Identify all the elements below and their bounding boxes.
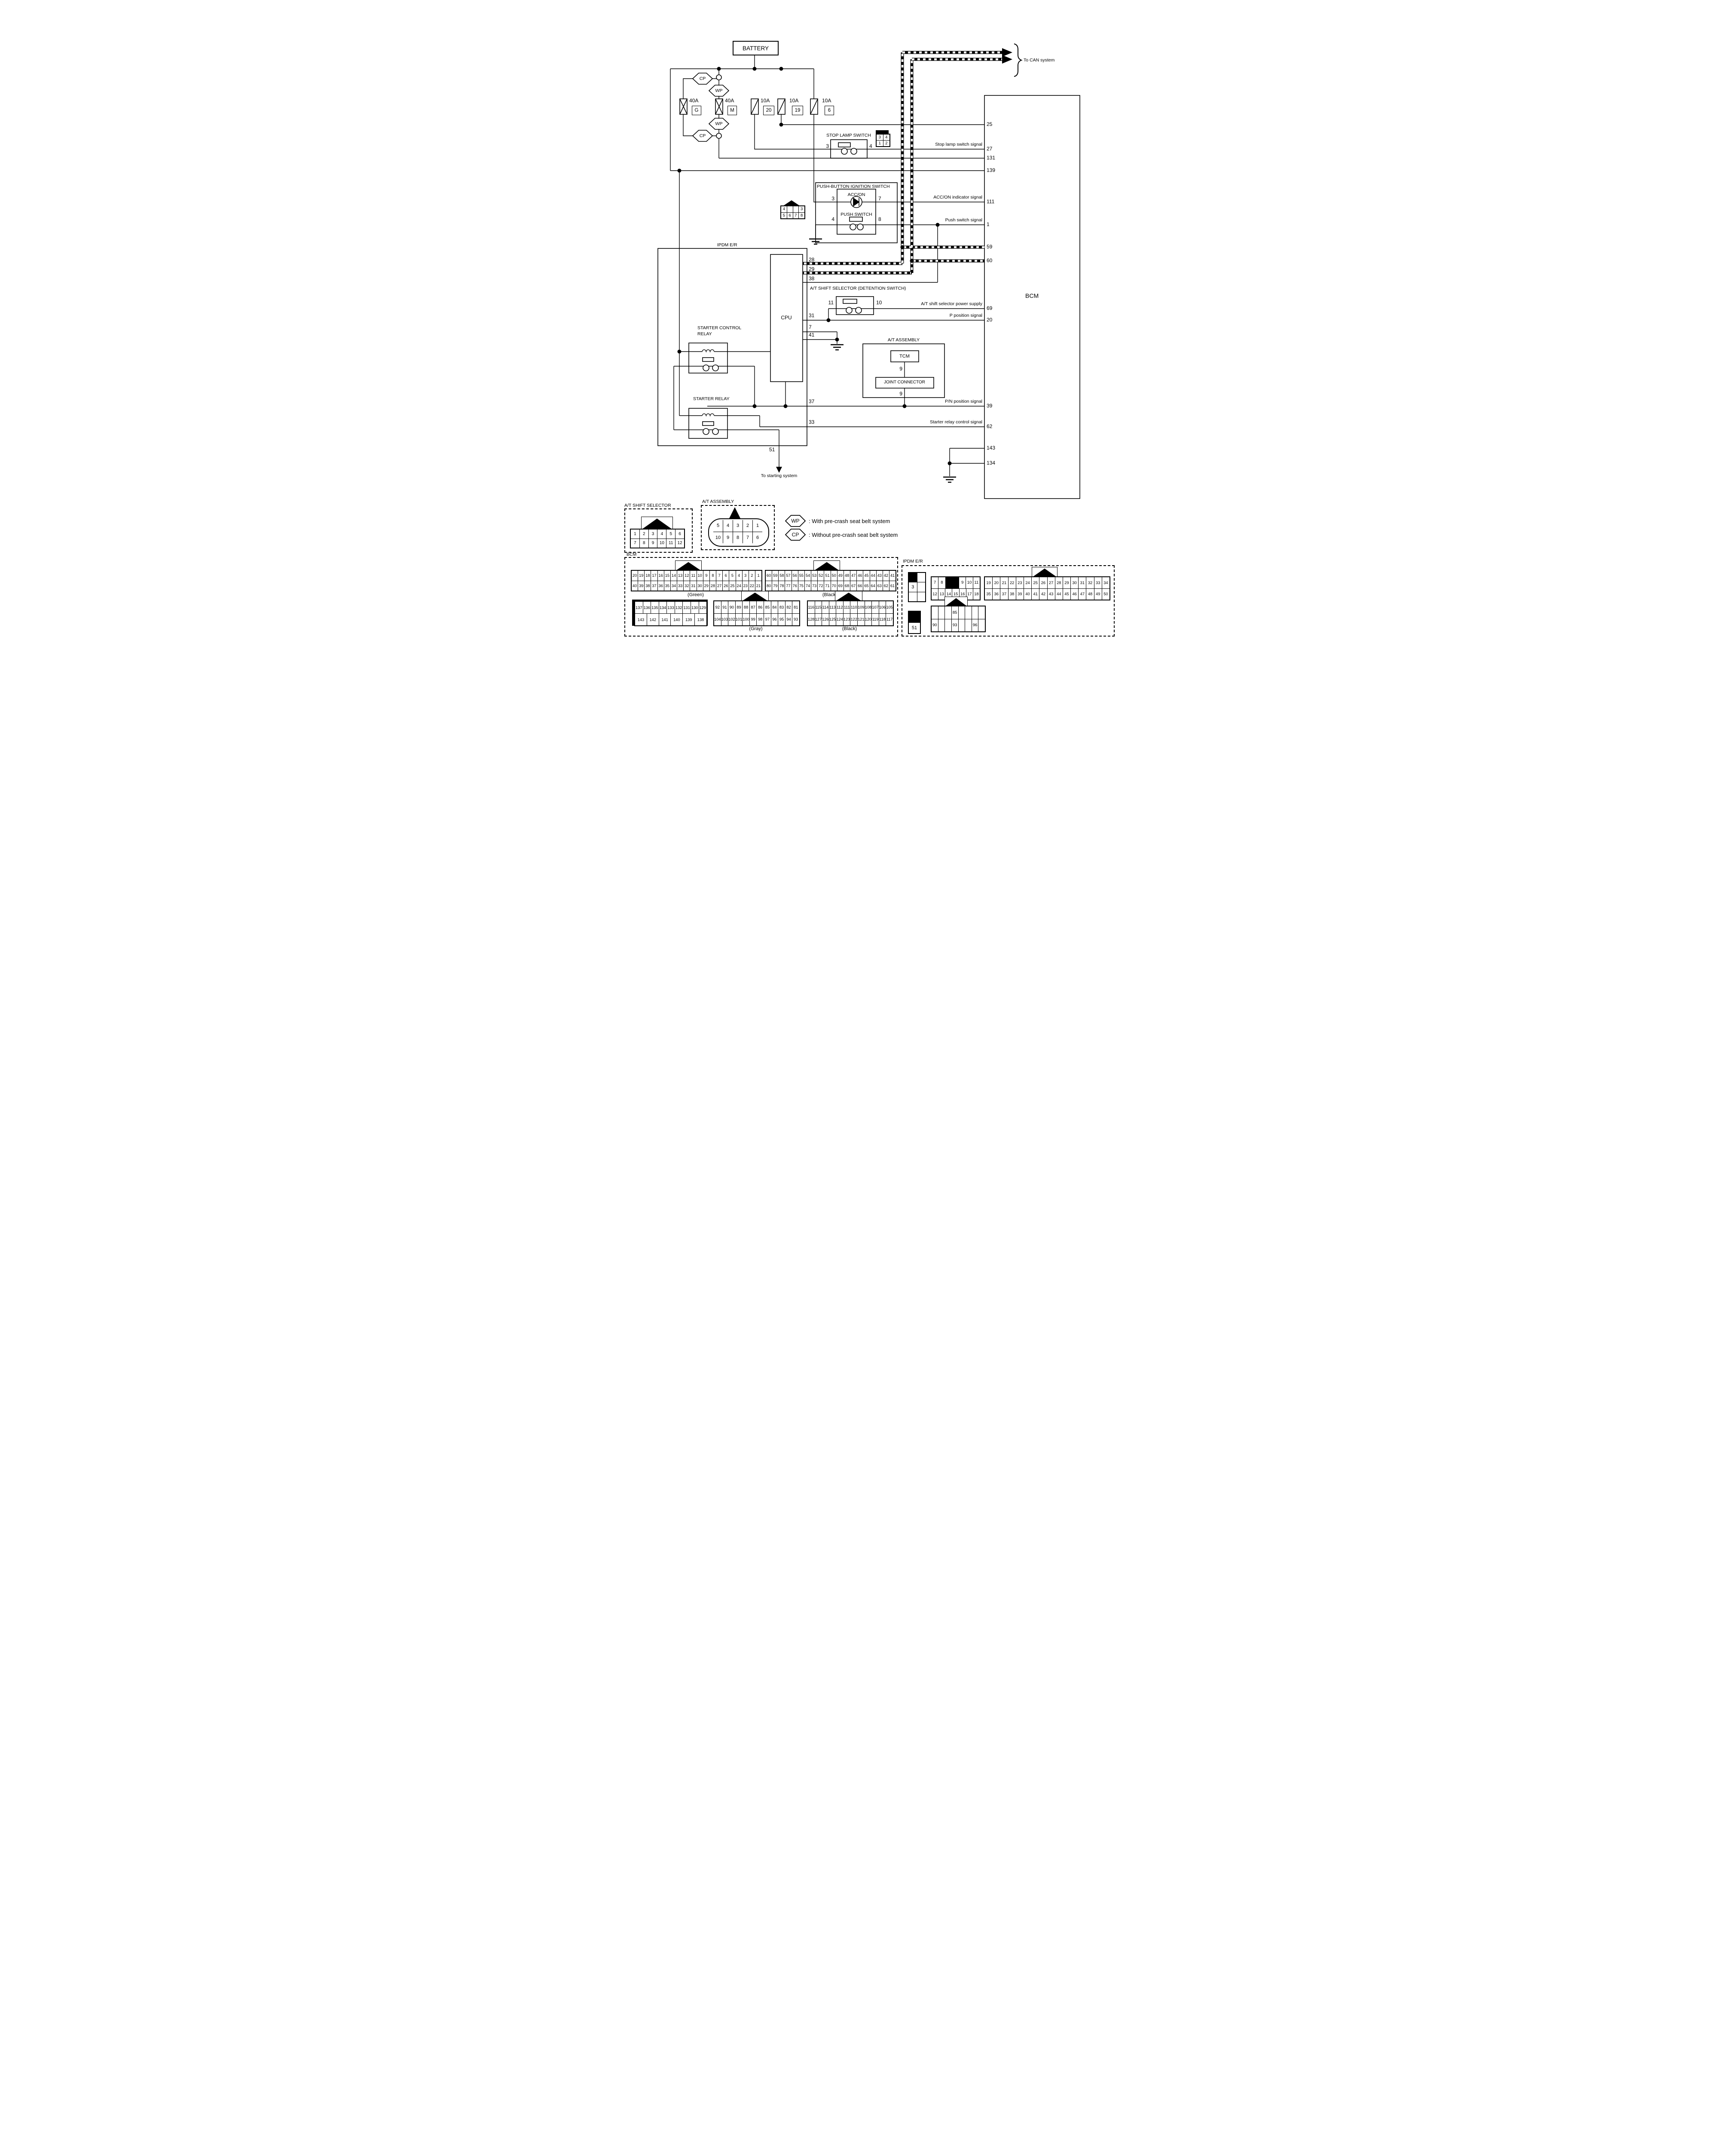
connector-pin-cell: 68 <box>844 581 850 591</box>
connector-pin-cell: 80 <box>766 581 772 591</box>
connector-pin-cell: 35 <box>985 589 992 600</box>
joint-connector-label: JOINT CONNECTOR <box>884 380 925 385</box>
bcm-gray-grid: 9291908988878685848382811041031021011009… <box>713 600 800 626</box>
connector-pin-cell: 34 <box>1102 577 1109 588</box>
connector-pin-cell: 6 <box>675 530 684 539</box>
connector-pin-cell: 90 <box>932 619 938 632</box>
bcm-pin-39: 39 <box>987 403 992 408</box>
connector-pin-cell: 4 <box>723 520 733 532</box>
connector-pin-cell: 10 <box>966 577 972 588</box>
ipdm-51-grid: 51 <box>908 611 921 634</box>
cpu-pin-29: 29 <box>809 266 814 272</box>
connector-pin-cell <box>965 619 972 632</box>
connector-pin-cell: 91 <box>721 601 728 613</box>
signal-shift-power: A/T shift selector power supply <box>921 302 982 306</box>
signal-p-position: P position signal <box>950 313 982 318</box>
can-arrow-icon <box>1002 55 1012 64</box>
connector-pin-cell <box>909 573 917 582</box>
connector-pin-cell: 8 <box>733 532 743 544</box>
bcm-green-grid: 2019181716151413121110987654321403938373… <box>631 570 762 591</box>
fuse-id: 20 <box>766 108 772 113</box>
connector-pin-cell: 85 <box>951 606 958 619</box>
connector-pin-cell: 48 <box>1086 589 1094 600</box>
connector-pin-cell: 27 <box>716 581 722 591</box>
connector-pin-cell <box>958 619 965 632</box>
connector-pin-cell: 49 <box>837 571 844 581</box>
fuse-id-box: 6 <box>825 106 834 115</box>
connector-pin-cell: 83 <box>778 601 785 613</box>
connector-pin-cell <box>917 573 926 582</box>
ground-symbols <box>809 239 956 482</box>
connector-pin-cell: 84 <box>771 601 778 613</box>
connector-pin-cell: 51 <box>824 571 830 581</box>
connector-pin-cell: 143 <box>635 614 647 625</box>
ign-pin-7: 7 <box>878 196 881 201</box>
connector-pin-cell: 125 <box>829 614 836 626</box>
connector-pin-cell: 33 <box>1094 577 1102 588</box>
bcm-pin-69: 69 <box>987 306 992 311</box>
connector-pin-cell: 9 <box>959 577 966 588</box>
connector-pin-cell: 96 <box>972 619 978 632</box>
connector-pin-cell: 36 <box>657 581 664 591</box>
connector-pin-cell: 20 <box>632 571 638 581</box>
cpu-pin-41: 41 <box>809 332 814 337</box>
connector-pin-cell: 10 <box>697 571 703 581</box>
ign-pin-3: 3 <box>831 196 834 201</box>
at-shift-selector-grid: 123456789101112 <box>630 529 685 548</box>
connector-pin-cell: 24 <box>1024 577 1031 588</box>
connector-pin-cell: 6 <box>787 213 793 219</box>
connector-pin-cell: 45 <box>863 571 869 581</box>
connector-pin-cell: 27 <box>1047 577 1055 588</box>
connector-pin-cell: 61 <box>889 581 896 591</box>
connector-pin-cell: 117 <box>886 614 893 626</box>
connector-pin-cell <box>938 619 945 632</box>
bcm-pin-20: 20 <box>987 317 992 322</box>
tcm-pin-9: 9 <box>899 366 902 371</box>
connector-pin-cell: 71 <box>824 581 830 591</box>
fuse-id-box: M <box>727 106 737 115</box>
connector-pin-cell: 47 <box>1078 589 1086 600</box>
connector-pin-cell: 7 <box>743 532 752 544</box>
ignition-connector-grid: 435678 <box>780 205 805 219</box>
cpu-pin-7: 7 <box>809 324 812 330</box>
connector-pin-cell: 2 <box>883 141 890 146</box>
connector-pin-cell: 28 <box>709 581 716 591</box>
connector-pin-cell: 59 <box>772 571 778 581</box>
connector-pin-cell: 45 <box>1063 589 1070 600</box>
det-pin-10: 10 <box>876 300 882 305</box>
connector-pin-cell: 50 <box>1102 589 1109 600</box>
bcm-pin-131: 131 <box>987 155 995 160</box>
connector-pin-cell: 37 <box>651 581 657 591</box>
wiring-diagram-page: BATTERY To CAN system CP WP WP CP 40A G … <box>618 0 1118 678</box>
connector-pin-cell: 62 <box>883 581 889 591</box>
at-assembly-view-title: A/T ASSEMBLY <box>702 499 734 504</box>
connector-pin-cell <box>909 592 917 601</box>
connector-pin-cell <box>917 592 926 601</box>
legend-cp-desc: : Without pre-crash seat belt system <box>809 532 898 538</box>
connector-pin-cell <box>944 619 951 632</box>
connector-pin-cell: 5 <box>781 213 787 219</box>
bcm-pin-134: 134 <box>987 460 995 465</box>
connector-pin-cell: 9 <box>703 571 709 581</box>
fuse-id: G <box>695 108 699 113</box>
connector-pin-cell: 32 <box>683 581 690 591</box>
stop-lamp-switch-title: STOP LAMP SWITCH <box>826 133 871 138</box>
connector-pin-cell: 122 <box>850 614 857 626</box>
connector-pin-cell: 60 <box>766 571 772 581</box>
connector-pin-cell: 58 <box>778 571 785 581</box>
connector-pin-cell: 3 <box>798 206 804 212</box>
ign-pin-8: 8 <box>878 217 881 222</box>
connector-pin-cell <box>787 206 793 212</box>
fuse-id: 6 <box>828 108 831 113</box>
connector-pin-cell: 74 <box>804 581 811 591</box>
connector-pin-cell: 4 <box>736 571 742 581</box>
stop-lamp-connector-grid: 3412 <box>876 134 890 147</box>
connector-pin-cell: 32 <box>1086 577 1094 588</box>
connector-pin-cell <box>958 606 965 619</box>
connector-pin-cell: 35 <box>664 581 670 591</box>
connector-pin-cell: 48 <box>844 571 850 581</box>
connector-pin-cell: 118 <box>879 614 886 626</box>
connector-pin-cell: 5 <box>729 571 735 581</box>
connector-pin-cell: 121 <box>857 614 865 626</box>
connector-pin-cell: 12 <box>683 571 690 581</box>
connector-pin-cell: 4 <box>657 530 666 539</box>
connector-pin-cell: 55 <box>798 571 804 581</box>
connector-pin-cell <box>909 612 920 622</box>
connector-pin-cell: 75 <box>798 581 804 591</box>
connector-pin-cell: 70 <box>831 581 837 591</box>
connector-pin-cell: 5 <box>713 520 723 532</box>
connector-pin-cell: 66 <box>856 581 863 591</box>
connector-pin-cell: 1 <box>877 141 883 146</box>
connector-pin-cell: 54 <box>804 571 811 581</box>
cp-label: CP <box>700 134 706 138</box>
connector-pin-cell: 50 <box>831 571 837 581</box>
connector-pin-cell: 93 <box>792 614 799 626</box>
fuse-amp-label: 10A <box>789 98 798 103</box>
bcm-pin-111: 111 <box>987 199 994 204</box>
connector-pin-cell: 29 <box>1063 577 1070 588</box>
battery-box: BATTERY <box>733 41 779 55</box>
connector-pin-cell: 76 <box>792 581 798 591</box>
cpu-label: CPU <box>781 315 792 320</box>
connector-pin-cell: 41 <box>889 571 896 581</box>
stop-pin-4: 4 <box>869 144 872 149</box>
bcm-pin-62: 62 <box>987 424 992 429</box>
connector-pin-cell: 86 <box>756 601 764 613</box>
to-starting-label: To starting system <box>761 474 798 478</box>
bcm-137-grid: 1371361351341331321311301291431421411401… <box>634 601 707 626</box>
connector-pin-cell: 109 <box>857 601 865 613</box>
connector-pin-cell: 1 <box>755 571 761 581</box>
connector-pin-cell: 9 <box>723 532 733 544</box>
detention-title: A/T SHIFT SELECTOR (DETENTION SWITCH) <box>810 286 906 291</box>
connector-pin-cell: 38 <box>1008 589 1016 600</box>
wp-label: WP <box>715 122 723 126</box>
cpu-pin-31: 31 <box>809 313 814 318</box>
fuse-id-box: 20 <box>763 106 774 115</box>
connector-pin-cell: 21 <box>755 581 761 591</box>
connector-pin-cell: 26 <box>722 581 729 591</box>
bcm-pin-27: 27 <box>987 146 992 151</box>
connector-pin-cell: 140 <box>670 614 682 625</box>
connector-pin-cell <box>938 606 945 619</box>
connector-pin-cell: 56 <box>792 571 798 581</box>
at-shift-selector-view-title: A/T SHIFT SELECTOR <box>624 503 671 508</box>
connector-pin-cell: 13 <box>938 589 945 600</box>
connector-pin-cell: 123 <box>843 614 850 626</box>
connector-pin-cell: 94 <box>785 614 792 626</box>
connector-pin-cell: 77 <box>785 581 791 591</box>
connector-pin-cell: 101 <box>735 614 743 626</box>
connector-pin-cell: 69 <box>837 581 844 591</box>
push-switch-label: PUSH SWITCH <box>840 212 872 217</box>
connector-pin-cell: 40 <box>1024 589 1031 600</box>
connector-pin-cell: 30 <box>697 581 703 591</box>
bcm-black2-color: (Black) <box>842 627 857 631</box>
legend-wp-desc: : With pre-crash seat belt system <box>809 518 890 524</box>
connector-pin-cell: 19 <box>985 577 992 588</box>
tcm-label: TCM <box>899 354 910 359</box>
connector-pin-cell: 57 <box>785 571 791 581</box>
connector-pin-cell: 51 <box>909 623 920 634</box>
connector-pin-cell: 23 <box>1016 577 1024 588</box>
bcm-pin-1: 1 <box>987 222 990 227</box>
ipdm-pin-33: 33 <box>809 419 814 425</box>
connector-pin-cell: 7 <box>631 539 639 548</box>
connector-pin-cell <box>972 606 978 619</box>
connector-pin-cell: 20 <box>992 577 1000 588</box>
connector-pin-cell: 3 <box>733 520 743 532</box>
connector-pin-cell <box>965 606 972 619</box>
ipdm-pin-51: 51 <box>769 447 775 452</box>
starter-control-relay-label: STARTER CONTROL <box>697 326 741 331</box>
connector-pin-cell: 95 <box>778 614 785 626</box>
connector-pin-cell: 134 <box>659 602 667 613</box>
connector-pin-cell: 12 <box>932 589 938 600</box>
stop-pin-3: 3 <box>826 144 829 149</box>
connector-pin-cell: 90 <box>728 601 735 613</box>
connector-pin-cell: 3 <box>742 571 749 581</box>
connector-pin-cell: 43 <box>876 571 883 581</box>
connector-pin-cell: 6 <box>752 532 762 544</box>
connector-pin-cell: 16 <box>657 571 664 581</box>
connector-pin-cell <box>978 619 985 632</box>
connector-pin-cell: 7 <box>793 213 799 219</box>
can-arrow-icon <box>1002 48 1012 57</box>
fuse-amp-label: 40A <box>689 98 698 103</box>
connector-pin-cell: 138 <box>694 614 706 625</box>
joint-pin-9: 9 <box>899 391 902 396</box>
at-assembly-title: A/T ASSEMBLY <box>888 338 920 343</box>
connector-pin-cell: 100 <box>742 614 749 626</box>
connector-pin-cell: 19 <box>638 571 644 581</box>
connector-pin-cell: 39 <box>638 581 644 591</box>
bcm-section-label: BCM <box>627 552 636 557</box>
connector-pin-cell: 31 <box>690 581 696 591</box>
connector-pin-cell: 36 <box>992 589 1000 600</box>
connector-pin-cell <box>945 577 959 588</box>
connector-pin-cell: 31 <box>1078 577 1086 588</box>
cpu-pin-28: 28 <box>809 257 814 262</box>
connector-pin-cell: 2 <box>639 530 648 539</box>
bcm-pin-60: 60 <box>987 258 992 263</box>
connector-pin-cell: 42 <box>1039 589 1047 600</box>
connector-pin-cell: 97 <box>764 614 771 626</box>
connector-pin-cell: 5 <box>666 530 675 539</box>
ipdm-section-label: IPDM E/R <box>903 559 923 564</box>
connector-pin-cell: 46 <box>856 571 863 581</box>
connector-pin-cell: 17 <box>651 571 657 581</box>
signal-pn-position: P/N position signal <box>945 399 982 404</box>
connector-pin-cell: 108 <box>865 601 872 613</box>
connector-pin-cell: 39 <box>1016 589 1024 600</box>
connector-pin-cell: 127 <box>815 614 822 626</box>
connector-pin-cell: 21 <box>1000 577 1008 588</box>
connector-pin-cell: 135 <box>651 602 659 613</box>
connector-pin-cell: 112 <box>836 601 843 613</box>
connector-pin-cell: 34 <box>670 581 677 591</box>
bcm-black1-grid: 6059585756555453525150494847464544434241… <box>765 570 896 591</box>
bcm-black2-grid: 1161151141131121111101091081071061051281… <box>807 600 894 626</box>
at-shift-selector-key <box>641 517 673 530</box>
connector-pin-cell: 139 <box>682 614 694 625</box>
signal-stop-lamp: Stop lamp switch signal <box>935 142 982 147</box>
connector-pin-cell: 1 <box>752 520 762 532</box>
connector-pin-cell: 63 <box>876 581 883 591</box>
fuse-id-box: 19 <box>792 106 803 115</box>
bcm-pin-59: 59 <box>987 244 992 249</box>
connector-pin-cell: 41 <box>1031 589 1039 600</box>
connector-pin-cell: 30 <box>1070 577 1078 588</box>
fuse-id: 19 <box>795 108 801 113</box>
connector-pin-cell: 73 <box>811 581 817 591</box>
bcm-label: BCM <box>1025 293 1039 299</box>
connector-pin-cell: 78 <box>778 581 785 591</box>
ipdm-3-grid: 3 <box>908 572 926 602</box>
connector-pin-cell: 99 <box>749 614 757 626</box>
acc-on-label: ACC/ON <box>848 193 865 197</box>
ign-pin-4: 4 <box>831 217 834 222</box>
connector-pin-cell: 23 <box>742 581 749 591</box>
to-can-label: To CAN system <box>1024 58 1054 63</box>
connector-pin-cell: 18 <box>644 571 651 581</box>
connector-pin-cell: 46 <box>1070 589 1078 600</box>
connector-pin-cell: 44 <box>1055 589 1063 600</box>
connector-pin-cell: 114 <box>822 601 829 613</box>
connector-pin-cell: 6 <box>722 571 729 581</box>
fuse-amp-label: 10A <box>761 98 770 103</box>
connector-pin-cell: 65 <box>863 581 869 591</box>
connector-pin-cell: 136 <box>643 602 651 613</box>
connector-pin-cell: 4 <box>781 206 787 212</box>
connector-pin-cell: 52 <box>817 571 824 581</box>
connector-pin-cell: 12 <box>675 539 684 548</box>
connector-pin-cell: 2 <box>749 571 755 581</box>
connector-pin-cell: 141 <box>659 614 671 625</box>
connector-pin-cell: 11 <box>666 539 675 548</box>
connector-pin-cell: 79 <box>772 581 778 591</box>
connector-pin-cell <box>917 582 926 591</box>
connector-pin-cell: 130 <box>691 602 699 613</box>
connector-pin-cell: 131 <box>682 602 691 613</box>
connector-pin-cell: 43 <box>1047 589 1055 600</box>
brace-icon <box>1014 44 1021 77</box>
connector-pin-cell: 2 <box>743 520 752 532</box>
connector-pin-cell: 111 <box>843 601 850 613</box>
connector-pin-cell: 7 <box>716 571 722 581</box>
ipdm-19-50-grid: 1920212223242526272829303132333435363738… <box>984 576 1110 600</box>
connector-pin-cell: 88 <box>742 601 749 613</box>
connector-pin-cell: 72 <box>817 581 824 591</box>
connector-pin-cell: 22 <box>749 581 755 591</box>
connector-pin-cell: 40 <box>632 581 638 591</box>
connector-pin-cell: 25 <box>729 581 735 591</box>
connector-pin-cell: 25 <box>1031 577 1039 588</box>
connector-pin-cell: 3 <box>909 582 917 591</box>
connector-pin-cell: 53 <box>811 571 817 581</box>
connector-pin-cell: 120 <box>865 614 872 626</box>
connector-pin-cell: 64 <box>870 581 876 591</box>
signal-starter-relay: Starter relay control signal <box>930 420 982 425</box>
bcm-pin-143: 143 <box>987 445 995 450</box>
connector-pin-cell: 102 <box>728 614 735 626</box>
connector-pin-cell: 106 <box>879 601 886 613</box>
fuse-id: M <box>730 108 734 113</box>
fuse-amp-label: 40A <box>725 98 734 103</box>
at-assembly-grid: 54321109876 <box>713 520 762 543</box>
legend-wp-code: WP <box>791 518 799 523</box>
connector-pin-cell: 44 <box>870 571 876 581</box>
fuse-id-box: G <box>692 106 701 115</box>
connector-pin-cell: 110 <box>850 601 857 613</box>
connector-pin-cell: 3 <box>877 135 883 140</box>
connector-pin-cell: 126 <box>822 614 829 626</box>
bcm-pin-139: 139 <box>987 168 995 173</box>
connector-pin-cell: 67 <box>850 581 856 591</box>
connector-pin-cell: 87 <box>749 601 757 613</box>
connector-pin-cell <box>944 606 951 619</box>
connector-pin-cell: 28 <box>1055 577 1063 588</box>
connector-pin-cell: 8 <box>938 577 945 588</box>
connector-pin-cell: 3 <box>648 530 657 539</box>
ipdm-pin-37: 37 <box>809 399 814 404</box>
connector-pin-cell: 4 <box>883 135 890 140</box>
connector-pin-cell <box>978 606 985 619</box>
connector-pin-cell: 11 <box>973 577 980 588</box>
connector-pin-cell: 38 <box>644 581 651 591</box>
connector-pin-cell <box>932 606 938 619</box>
connector-pin-cell: 82 <box>785 601 792 613</box>
connector-pin-cell: 132 <box>675 602 683 613</box>
connector-pin-cell: 1 <box>631 530 639 539</box>
starter-control-relay-label-2: RELAY <box>697 332 712 337</box>
connector-pin-cell: 13 <box>677 571 683 581</box>
cpu-pin-38: 38 <box>809 276 814 281</box>
legend-cp-code: CP <box>792 532 799 537</box>
connector-pin-cell: 49 <box>1094 589 1102 600</box>
signal-acc-on: ACC/ON indicator signal <box>933 195 982 200</box>
connector-pin-cell: 81 <box>792 601 799 613</box>
cp-label: CP <box>700 77 706 81</box>
fuse-amp-label: 10A <box>822 98 831 103</box>
connector-pin-cell: 92 <box>714 601 721 613</box>
wp-label: WP <box>715 89 723 93</box>
